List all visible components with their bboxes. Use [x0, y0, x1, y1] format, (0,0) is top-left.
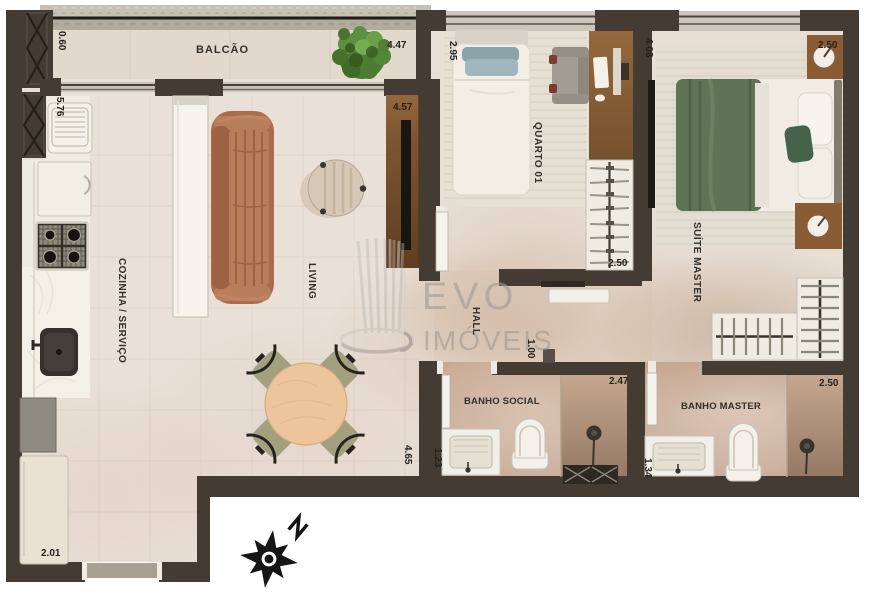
svg-text:2.50: 2.50: [818, 40, 838, 51]
svg-text:1.34: 1.34: [642, 458, 653, 478]
svg-text:4.57: 4.57: [393, 102, 413, 113]
svg-text:SUÍTE MASTER: SUÍTE MASTER: [691, 222, 704, 303]
svg-text:BALCÃO: BALCÃO: [196, 43, 249, 56]
svg-text:1.00: 1.00: [525, 339, 536, 359]
svg-text:BANHO MASTER: BANHO MASTER: [681, 401, 761, 412]
svg-text:COZINHA / SERVIÇO: COZINHA / SERVIÇO: [116, 258, 127, 363]
svg-text:5.76: 5.76: [54, 97, 65, 117]
svg-text:2.50: 2.50: [819, 378, 839, 389]
svg-text:QUARTO 01: QUARTO 01: [532, 122, 543, 184]
svg-text:1.23: 1.23: [432, 448, 443, 468]
svg-text:BANHO SOCIAL: BANHO SOCIAL: [464, 396, 540, 407]
svg-text:4.65: 4.65: [402, 445, 413, 465]
svg-text:2.95: 2.95: [447, 41, 458, 61]
svg-text:HALL: HALL: [470, 307, 481, 336]
svg-text:0.60: 0.60: [56, 31, 67, 51]
svg-text:2.01: 2.01: [41, 548, 61, 559]
svg-text:2.47: 2.47: [609, 376, 629, 387]
svg-text:LIVING: LIVING: [306, 263, 317, 299]
svg-text:4.08: 4.08: [643, 38, 654, 58]
svg-text:2.50: 2.50: [608, 258, 628, 269]
svg-text:4.47: 4.47: [387, 40, 407, 51]
